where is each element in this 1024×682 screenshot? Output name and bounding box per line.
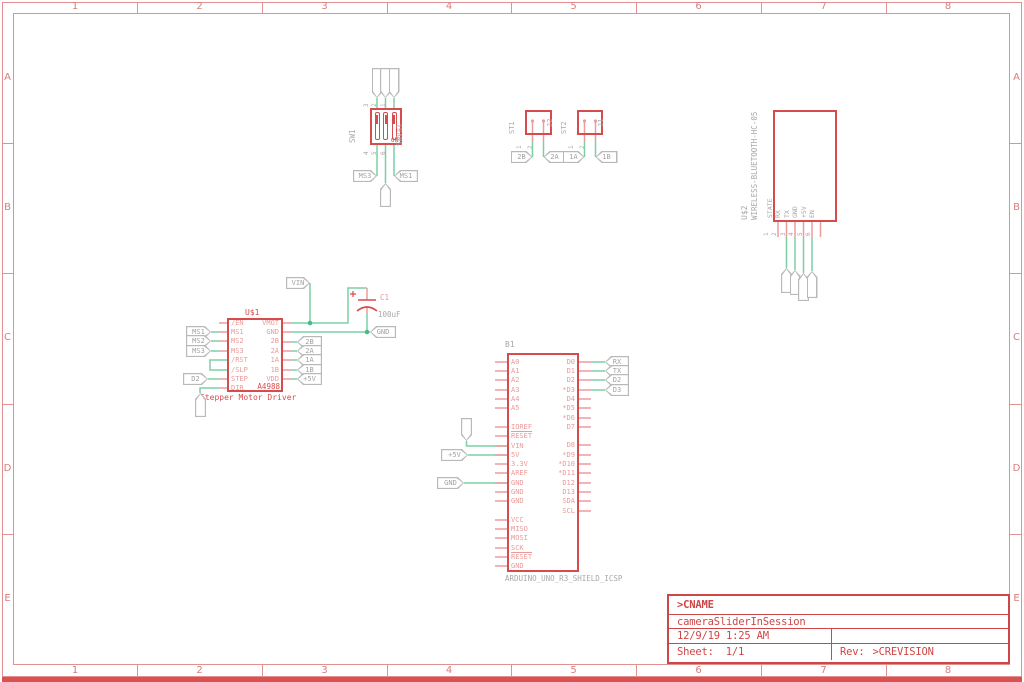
pin-number: 1 <box>568 145 576 149</box>
title-block-project-row: cameraSliderInSession <box>669 614 1008 628</box>
pin-number: 1 <box>763 232 771 236</box>
pin-label: *D5 <box>533 403 575 413</box>
title-block-sheet: Sheet: 1/1 <box>669 646 831 658</box>
pin-label: A5 <box>511 403 519 413</box>
pin-label: SCL <box>533 506 575 516</box>
title-block-cname-row: >CNAME <box>669 596 1008 614</box>
switch-handle <box>376 115 378 124</box>
pin-label: EN <box>808 210 816 218</box>
pin-label: TX <box>783 210 791 218</box>
bluetooth-ref: U$2 <box>741 206 749 220</box>
pin-number: 4 <box>363 151 371 155</box>
pin-label: +5V <box>800 206 808 218</box>
stepper-ref: U$1 <box>245 308 259 318</box>
pin-number: 4 <box>788 232 796 236</box>
pin-label: D2 <box>533 375 575 385</box>
plus-sign <box>350 291 356 297</box>
arduino-ref: B1 <box>505 340 515 350</box>
pin-label: MOSI <box>511 533 528 543</box>
pin-label: DIR <box>231 383 244 393</box>
sheet-value: 1/1 <box>726 646 744 658</box>
pin-label: STATE <box>766 198 774 218</box>
pin-number: 2 <box>579 145 587 149</box>
pin-number: 1 <box>516 145 524 149</box>
pin-number: 2 <box>771 232 779 236</box>
pin-label: AREF <box>511 468 528 478</box>
net-flag-5v[interactable]: +5V <box>389 68 400 98</box>
title-block-sheet-row: Sheet: 1/1 Rev: >CREVISION <box>669 643 1008 660</box>
pin-number: 5 <box>371 151 379 155</box>
pin-label: RESET <box>511 431 532 441</box>
sheet-label: Sheet: <box>677 646 714 658</box>
terminal-st2-ref: ST2 <box>560 121 568 134</box>
capacitor-ref: C1 <box>380 293 389 303</box>
pin-number: 1 <box>380 103 388 107</box>
pin-number: 2 <box>527 145 535 149</box>
switch-handle <box>393 115 395 124</box>
capacitor-value: 100uF <box>378 310 401 320</box>
pin-label: *D11 <box>533 468 575 478</box>
dip-switch-slot[interactable] <box>383 112 388 140</box>
dip-switch-value: SWVal <box>396 123 404 146</box>
pin-number: 3 <box>780 232 788 236</box>
net-wires[interactable] <box>200 98 812 483</box>
bluetooth-value: WIRELESS-BLUETOOTH-HC-05 <box>751 112 759 220</box>
pin-number: 2 <box>371 103 379 107</box>
pin-number: 6 <box>380 151 388 155</box>
pin-number: 5 <box>797 232 805 236</box>
pin-label: SDA <box>533 496 575 506</box>
junction-dot <box>308 321 313 326</box>
terminal-st1-value: J2 <box>546 119 554 127</box>
dip-switch-ref: SW1 <box>349 129 357 143</box>
title-block-rev: Rev: >CREVISION <box>831 644 1008 660</box>
dip-switch-slot[interactable] <box>375 112 380 140</box>
capacitor-symbol[interactable] <box>350 291 377 311</box>
rev-value: >CREVISION <box>873 646 934 658</box>
junction-dot <box>365 330 370 335</box>
title-block-cname: >CNAME <box>677 599 714 611</box>
title-block-datetime: 12/9/19 1:25 AM <box>669 630 831 642</box>
pin-label: 2B <box>244 336 279 346</box>
stepper-description: Stepper Motor Driver <box>200 393 296 403</box>
pin-number: 3 <box>363 103 371 107</box>
pin-label: D7 <box>533 422 575 432</box>
switch-handle <box>385 115 387 124</box>
rev-label: Rev: <box>840 646 865 658</box>
pin-label: RX <box>774 210 782 218</box>
terminal-st1-ref: ST1 <box>508 121 516 134</box>
terminal-st2-value: J1 <box>597 119 605 127</box>
pin-number: 6 <box>805 232 813 236</box>
title-block-date-row: 12/9/19 1:25 AM <box>669 628 1008 643</box>
pin-label: GND <box>511 496 524 506</box>
schematic-sheet: 1 2 3 4 5 6 7 8 1 2 3 4 5 6 7 8 A B C D … <box>0 0 1024 682</box>
pin-label: GND <box>511 561 524 571</box>
pin-label: A2 <box>511 375 519 385</box>
title-block-date-row-right <box>831 629 1008 643</box>
pin-label: VDD <box>244 374 279 384</box>
pin-label: GND <box>791 206 799 218</box>
pin-label: D8 <box>533 440 575 450</box>
pin-label: 1A <box>244 355 279 365</box>
title-block[interactable]: >CNAME cameraSliderInSession 12/9/19 1:2… <box>667 594 1010 664</box>
pin-label: MS2 <box>231 336 244 346</box>
arduino-value: ARDUINO_UNO_R3_SHIELD_ICSP <box>505 574 622 584</box>
title-block-project: cameraSliderInSession <box>677 616 806 628</box>
